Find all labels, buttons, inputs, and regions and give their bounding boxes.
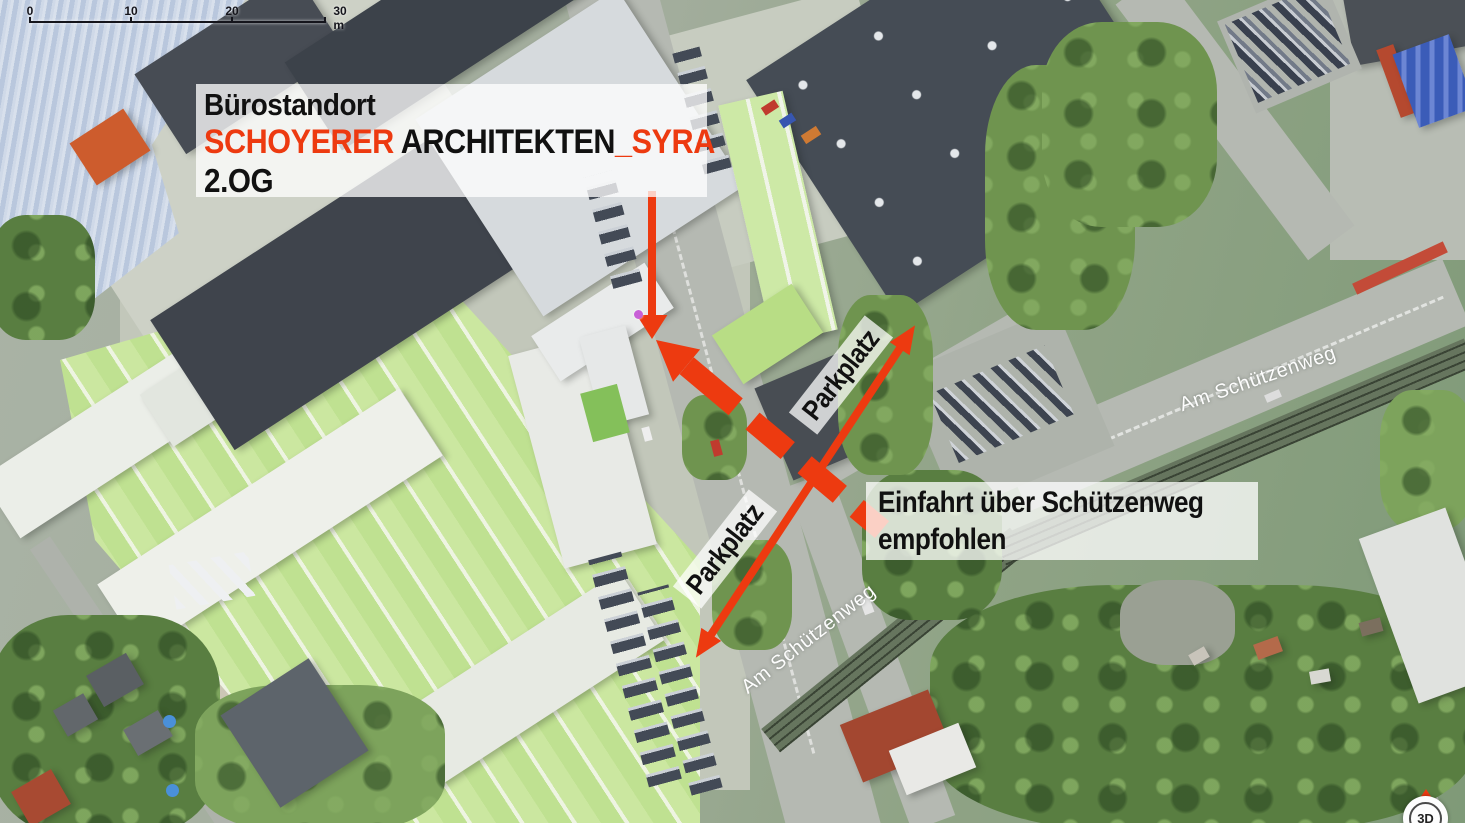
scale-tick xyxy=(231,17,233,23)
trees xyxy=(0,215,95,340)
pool xyxy=(166,784,179,797)
pool xyxy=(163,715,176,728)
office-name-red: SCHOYERER xyxy=(204,123,394,161)
trees xyxy=(1380,390,1465,530)
scale-label: 0 xyxy=(27,4,34,18)
scale-label: 10 xyxy=(124,4,137,18)
office-name-suffix-red: _SYRA xyxy=(615,123,715,161)
3d-button-label: 3D xyxy=(1417,811,1434,823)
entrance-note: Einfahrt über Schützenweg empfohlen xyxy=(866,482,1258,560)
scale-bar-line xyxy=(29,21,326,23)
scale-tick xyxy=(324,17,326,23)
aerial-map-view[interactable]: 0 10 20 30 m Bürostandort SCHOYERER ARCH… xyxy=(0,0,1465,823)
scale-label: 20 xyxy=(225,4,238,18)
office-location-label: Bürostandort SCHOYERER ARCHITEKTEN_SYRA … xyxy=(196,84,707,197)
3d-button-inner-ring: 3D xyxy=(1409,802,1442,823)
3d-button-circle: 3D xyxy=(1403,796,1448,823)
map-scale-bar: 0 10 20 30 m xyxy=(22,4,352,28)
scale-label: 30 m xyxy=(333,4,346,32)
office-label-line2: SCHOYERER ARCHITEKTEN_SYRA xyxy=(204,123,707,162)
gravel-area xyxy=(1120,580,1235,665)
scale-tick xyxy=(130,17,132,23)
entrance-note-line2: empfohlen xyxy=(878,521,1258,558)
3d-view-button[interactable]: 3D xyxy=(1403,789,1449,823)
trees xyxy=(1042,22,1217,227)
location-pointer-arrow-shaft xyxy=(648,191,656,317)
office-name-black: ARCHITEKTEN xyxy=(394,123,615,161)
office-label-line1: Bürostandort xyxy=(204,87,707,123)
office-label-line3: 2.OG xyxy=(204,162,707,199)
parked-cars xyxy=(930,345,1074,463)
office-floor-text: 2.OG xyxy=(204,162,273,199)
scale-tick xyxy=(29,17,31,23)
location-marker-dot xyxy=(634,310,643,319)
entrance-note-line1: Einfahrt über Schützenweg xyxy=(878,484,1258,521)
office-label-city-text: Bürostandort xyxy=(204,87,375,123)
